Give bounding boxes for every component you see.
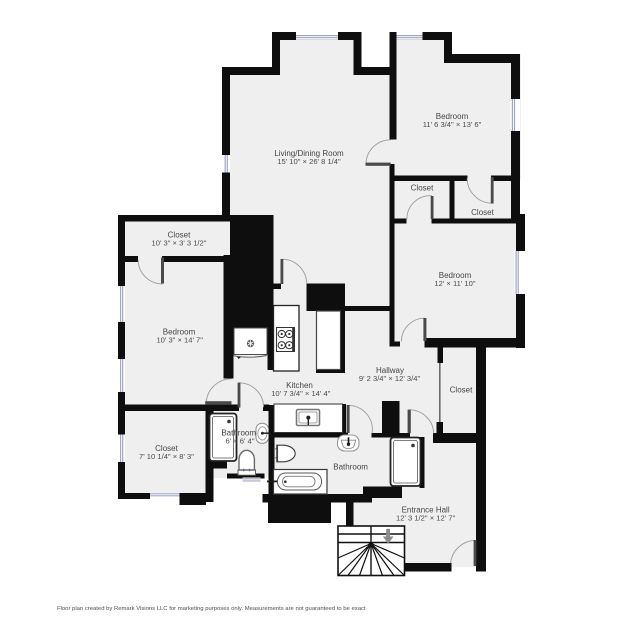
svg-text:10' 3" × 14' 7": 10' 3" × 14' 7" [156,336,203,345]
svg-text:11' 6 3/4" × 13' 6": 11' 6 3/4" × 13' 6" [423,120,482,129]
svg-text:6' × 6' 4": 6' × 6' 4" [225,437,254,446]
svg-text:12' × 11' 10": 12' × 11' 10" [434,279,475,288]
svg-text:Closet: Closet [450,386,473,395]
svg-text:9' 2 3/4" × 12' 3/4": 9' 2 3/4" × 12' 3/4" [359,374,421,383]
svg-text:12' 3 1/2" × 12' 7": 12' 3 1/2" × 12' 7" [396,514,455,523]
svg-text:10' 7 3/4" × 14' 4": 10' 7 3/4" × 14' 4" [271,389,330,398]
svg-text:Closet: Closet [411,184,434,193]
svg-text:Floor plan created by Remark V: Floor plan created by Remark Visions LLC… [57,606,366,612]
svg-text:Closet: Closet [471,208,494,217]
svg-text:15' 10" × 26' 8 1/4": 15' 10" × 26' 8 1/4" [277,157,341,166]
svg-text:Bathroom: Bathroom [333,463,368,472]
svg-text:7' 10 1/4" × 8' 3": 7' 10 1/4" × 8' 3" [139,452,194,461]
svg-text:10' 3" × 3' 3 1/2": 10' 3" × 3' 3 1/2" [152,239,207,248]
